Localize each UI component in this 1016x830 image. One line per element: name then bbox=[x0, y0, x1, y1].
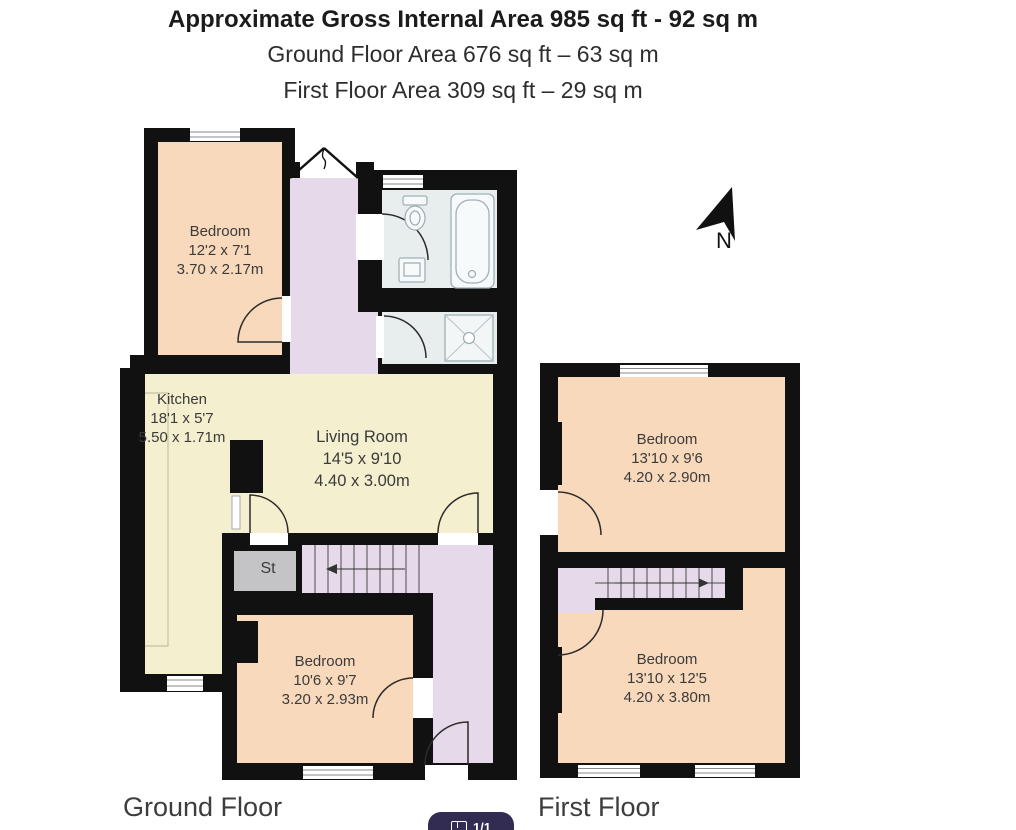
room-dim-imperial: 18'1 x 5'7 bbox=[92, 409, 272, 428]
room-name: Bedroom bbox=[577, 430, 757, 449]
room-label-bedroom1: Bedroom 12'2 x 7'1 3.70 x 2.17m bbox=[130, 222, 310, 279]
ground-floor-area-subtitle: Ground Floor Area 676 sq ft – 63 sq m bbox=[0, 41, 926, 68]
room-label-storage: St bbox=[239, 560, 297, 578]
room-dim-metric: 3.70 x 2.17m bbox=[130, 260, 310, 279]
total-area-title: Approximate Gross Internal Area 985 sq f… bbox=[0, 6, 926, 34]
floorplan-page: Approximate Gross Internal Area 985 sq f… bbox=[0, 0, 1016, 830]
room-dim-metric: 4.20 x 3.80m bbox=[577, 688, 757, 707]
room-dim-imperial: 14'5 x 9'10 bbox=[272, 448, 452, 470]
room-dim-imperial: 10'6 x 9'7 bbox=[235, 671, 415, 690]
room-dim-metric: 3.20 x 2.93m bbox=[235, 690, 415, 709]
room-dim-metric: 5.50 x 1.71m bbox=[92, 428, 272, 447]
room-name: Kitchen bbox=[92, 390, 272, 409]
room-label-living-room: Living Room 14'5 x 9'10 4.40 x 3.00m bbox=[272, 426, 452, 492]
header: Approximate Gross Internal Area 985 sq f… bbox=[0, 2, 926, 113]
room-name: Living Room bbox=[272, 426, 452, 448]
floorplan-page-badge[interactable]: 1/1 bbox=[428, 812, 514, 830]
toilet-icon bbox=[403, 196, 427, 205]
room-dim-imperial: 13'10 x 12'5 bbox=[577, 669, 757, 688]
room-label-kitchen: Kitchen 18'1 x 5'7 5.50 x 1.71m bbox=[92, 390, 272, 447]
floorplan-icon bbox=[451, 821, 467, 830]
toilet-bowl-icon bbox=[405, 206, 425, 230]
north-label: N bbox=[716, 228, 732, 254]
room-dim-imperial: 13'10 x 9'6 bbox=[577, 449, 757, 468]
room-dim-metric: 4.20 x 2.90m bbox=[577, 468, 757, 487]
ff-door-opening bbox=[540, 490, 558, 535]
first-floor-plan bbox=[530, 355, 820, 780]
radiator bbox=[232, 496, 240, 529]
room-dim-imperial: 12'2 x 7'1 bbox=[130, 241, 310, 260]
room-name: Bedroom bbox=[130, 222, 310, 241]
page-count-label: 1/1 bbox=[473, 820, 491, 830]
sink-icon bbox=[399, 258, 425, 282]
entrance-double-doors bbox=[290, 148, 358, 178]
ground-floor-caption: Ground Floor bbox=[123, 792, 282, 823]
room-dim-metric: 4.40 x 3.00m bbox=[272, 470, 452, 492]
room-label-ff-bedroom2: Bedroom 13'10 x 12'5 4.20 x 3.80m bbox=[577, 650, 757, 707]
first-floor-area-subtitle: First Floor Area 309 sq ft – 29 sq m bbox=[0, 77, 926, 104]
room-label-bedroom3: Bedroom 10'6 x 9'7 3.20 x 2.93m bbox=[235, 652, 415, 709]
room-name: Bedroom bbox=[235, 652, 415, 671]
chimney-breast bbox=[230, 440, 263, 493]
first-floor-caption: First Floor bbox=[538, 792, 660, 823]
room-name: Bedroom bbox=[577, 650, 757, 669]
room-label-ff-bedroom1: Bedroom 13'10 x 9'6 4.20 x 2.90m bbox=[577, 430, 757, 487]
